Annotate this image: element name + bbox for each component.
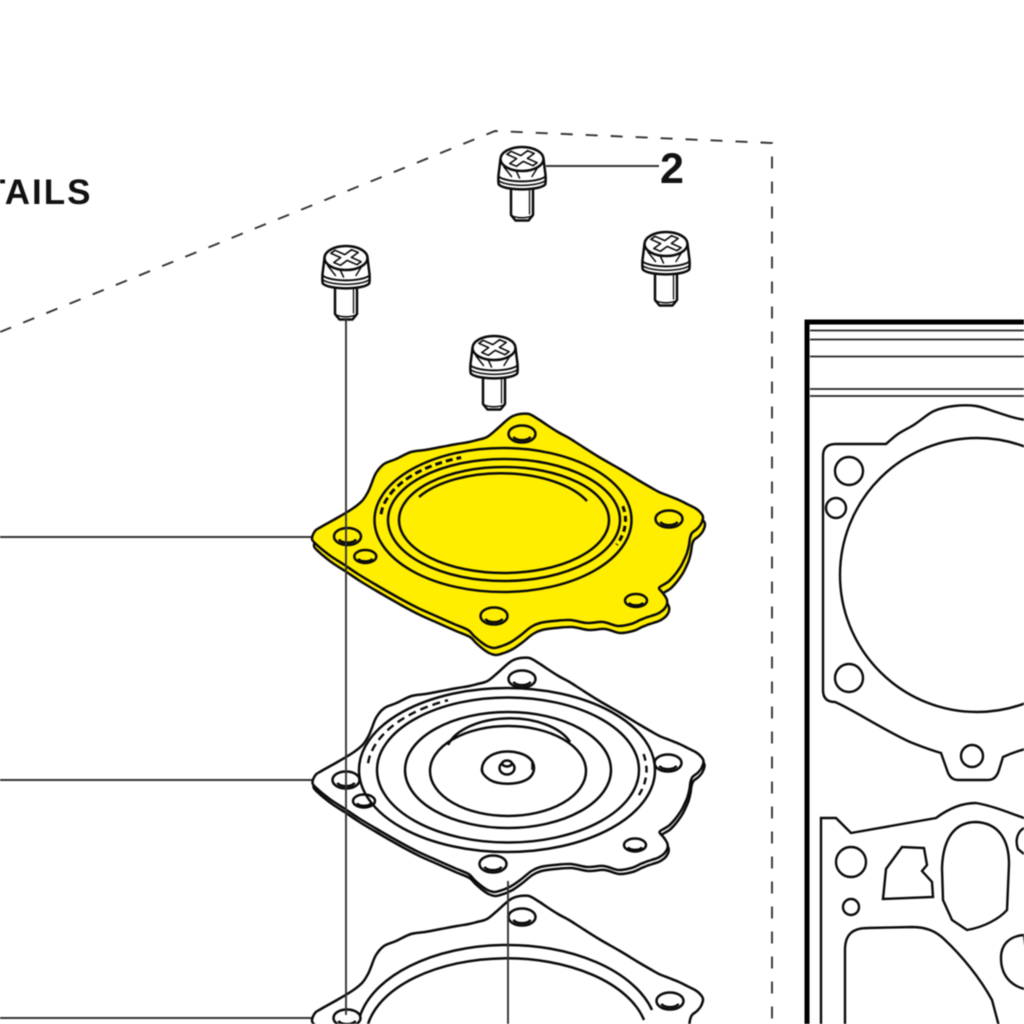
svg-text:2: 2 <box>660 145 684 193</box>
svg-text:TAILS: TAILS <box>0 173 93 212</box>
